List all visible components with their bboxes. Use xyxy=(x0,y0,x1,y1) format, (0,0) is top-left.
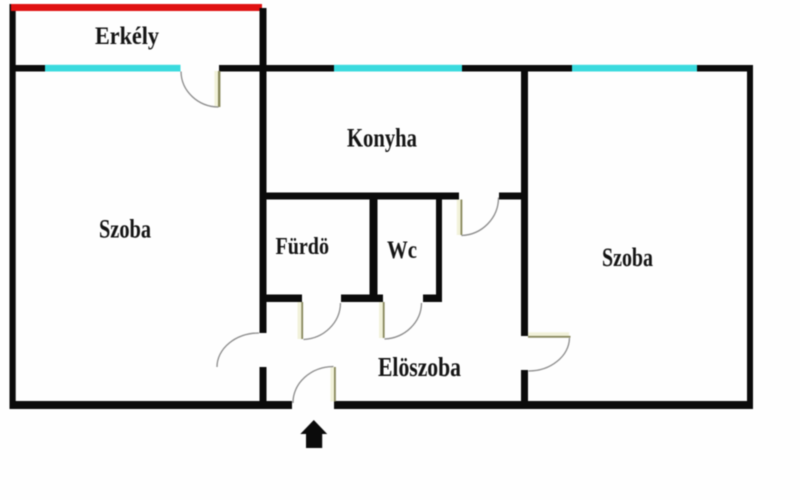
svg-text:Erkély: Erkély xyxy=(95,23,159,50)
svg-text:Szoba: Szoba xyxy=(99,215,151,244)
svg-text:Konyha: Konyha xyxy=(347,124,417,153)
svg-text:Elöszoba: Elöszoba xyxy=(378,352,461,382)
svg-text:Szoba: Szoba xyxy=(602,243,653,272)
svg-text:Wc: Wc xyxy=(387,237,417,264)
svg-text:Fürdö: Fürdö xyxy=(276,234,330,260)
